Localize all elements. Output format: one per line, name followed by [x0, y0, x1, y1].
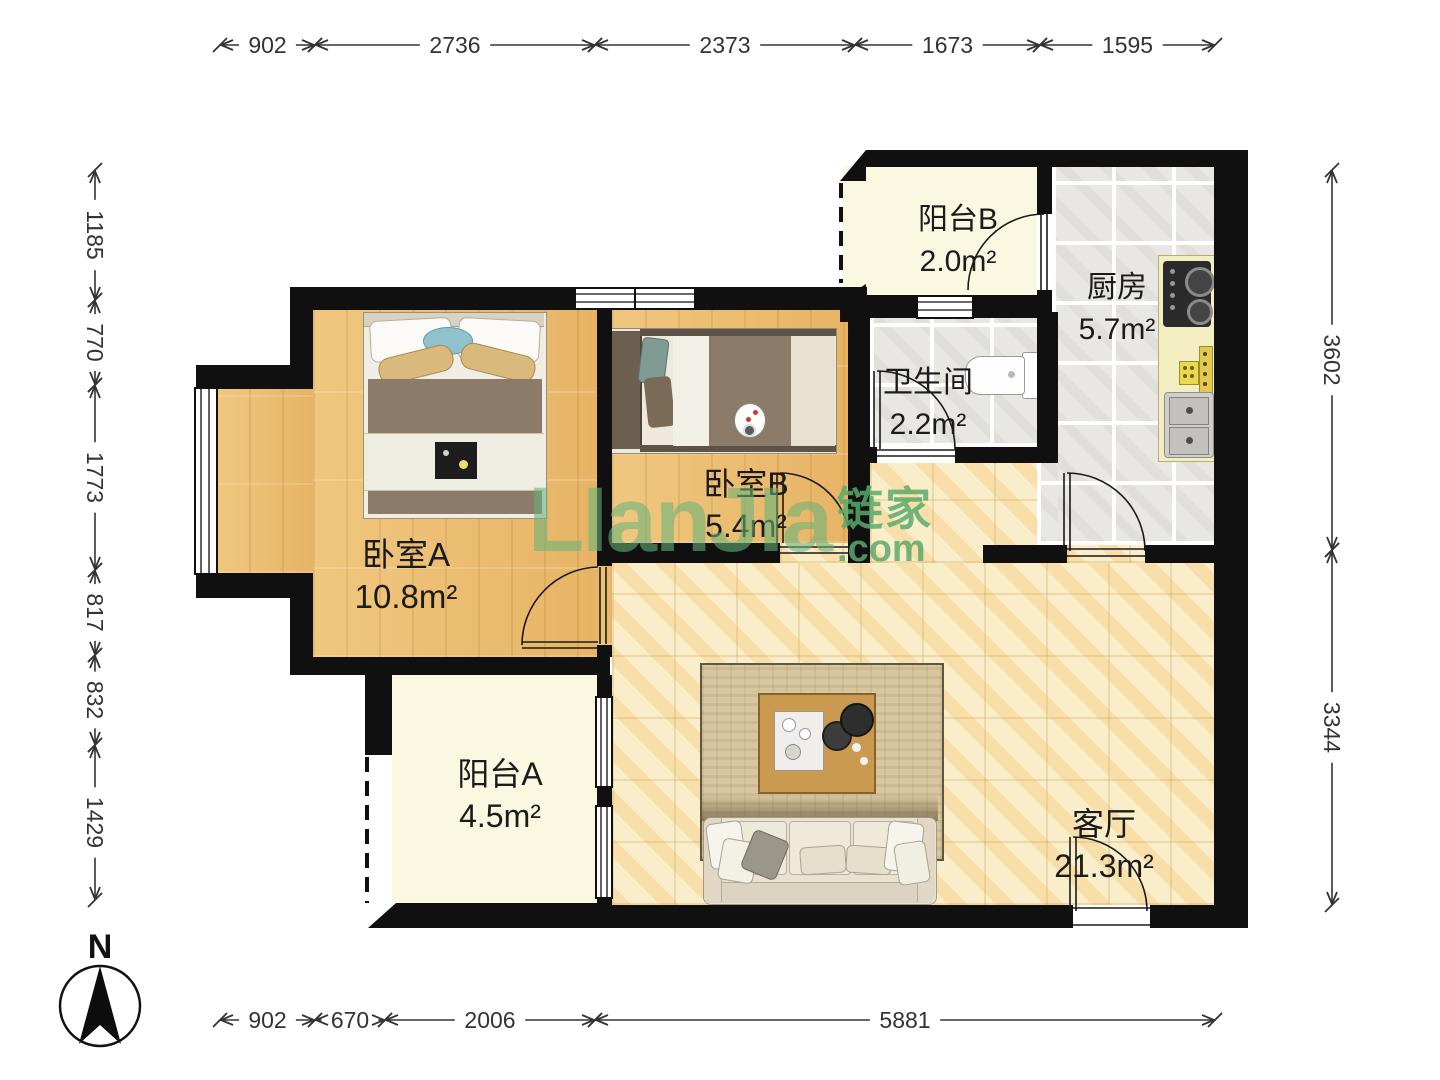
single-bed-rail-top [640, 329, 836, 336]
compass-north-label: N [80, 928, 120, 967]
burner-large [1185, 267, 1215, 297]
svg-text:2373: 2373 [699, 32, 750, 58]
single-bed-blanket [791, 336, 835, 446]
wall [196, 365, 313, 389]
svg-text:902: 902 [248, 32, 286, 58]
table-bowl-large [840, 703, 874, 737]
wall [1037, 167, 1052, 214]
wall [848, 310, 870, 563]
wall [973, 295, 1037, 318]
wall [866, 295, 917, 318]
wall [1037, 312, 1058, 460]
stove [1163, 261, 1211, 327]
floor-balcony-a [392, 673, 597, 903]
wall [695, 287, 867, 310]
bay-window [195, 388, 217, 574]
svg-text:770: 770 [82, 323, 108, 361]
svg-text:3344: 3344 [1319, 702, 1345, 753]
sink-basin [1169, 427, 1209, 455]
wall [1214, 150, 1248, 928]
single-bed-sheet [673, 336, 709, 446]
floor-bedroom-b-door-gap [780, 543, 848, 563]
wall [983, 545, 1067, 563]
floor-kitchen-west-strip [1037, 460, 1058, 545]
floor-bedroom-a-bay-nook [216, 389, 313, 573]
single-bed-pillow-brown [643, 376, 675, 429]
svg-text:1429: 1429 [82, 797, 108, 848]
sink-basin [1169, 397, 1209, 425]
floor-balcony-b [843, 167, 1037, 295]
balcony-a-window-upper [596, 697, 612, 787]
svg-text:5881: 5881 [879, 1007, 930, 1033]
wall [1145, 545, 1214, 563]
svg-text:1773: 1773 [82, 452, 108, 503]
svg-text:817: 817 [82, 593, 108, 631]
wall [1037, 290, 1052, 312]
north-compass [60, 966, 140, 1046]
single-bed [608, 328, 837, 454]
bed-tray [435, 442, 477, 479]
wall [866, 447, 877, 463]
svg-text:1185: 1185 [82, 210, 108, 259]
wall [597, 905, 1073, 928]
sofa-back [706, 882, 932, 903]
wall [866, 150, 1248, 167]
wall [597, 310, 612, 566]
kitchen-counter [1158, 255, 1216, 462]
coffee-table [758, 693, 876, 794]
sofa-pillow [799, 844, 847, 875]
svg-text:832: 832 [82, 681, 108, 719]
double-bed [363, 312, 547, 519]
floor-bedroom-a-door-gap [597, 566, 612, 645]
balcony-a-window-lower [596, 806, 612, 898]
wall [290, 287, 313, 368]
floorplan-canvas: 9022736237316731595902670200658811185770… [0, 0, 1440, 1080]
wall [597, 645, 612, 657]
single-bed-headboard [610, 331, 642, 449]
wall [610, 543, 780, 563]
svg-text:3602: 3602 [1319, 334, 1345, 385]
single-bed-tray [734, 403, 766, 438]
svg-text:670: 670 [331, 1007, 369, 1033]
toilet [965, 352, 1040, 397]
single-bed-rail-bottom [640, 445, 836, 452]
toilet-bowl [965, 356, 1025, 395]
double-sink [1164, 392, 1214, 458]
burner-small [1187, 299, 1213, 325]
wall [365, 657, 392, 755]
spice-box [1179, 361, 1199, 385]
table-tray [774, 711, 824, 771]
wall-chamfer-balcony-a [368, 903, 612, 928]
svg-text:902: 902 [248, 1007, 286, 1033]
wall [290, 287, 575, 310]
svg-text:2736: 2736 [429, 32, 480, 58]
wall [1150, 905, 1214, 928]
svg-text:1673: 1673 [922, 32, 973, 58]
wall [597, 786, 612, 808]
svg-text:1595: 1595 [1102, 32, 1153, 58]
wall [290, 657, 610, 675]
wall [597, 675, 612, 700]
sofa [703, 817, 937, 905]
sofa-pillow [893, 840, 931, 886]
floor-kitchen-door-gap [1067, 545, 1145, 563]
svg-text:2006: 2006 [464, 1007, 515, 1033]
bedroom-b-window [575, 288, 695, 309]
